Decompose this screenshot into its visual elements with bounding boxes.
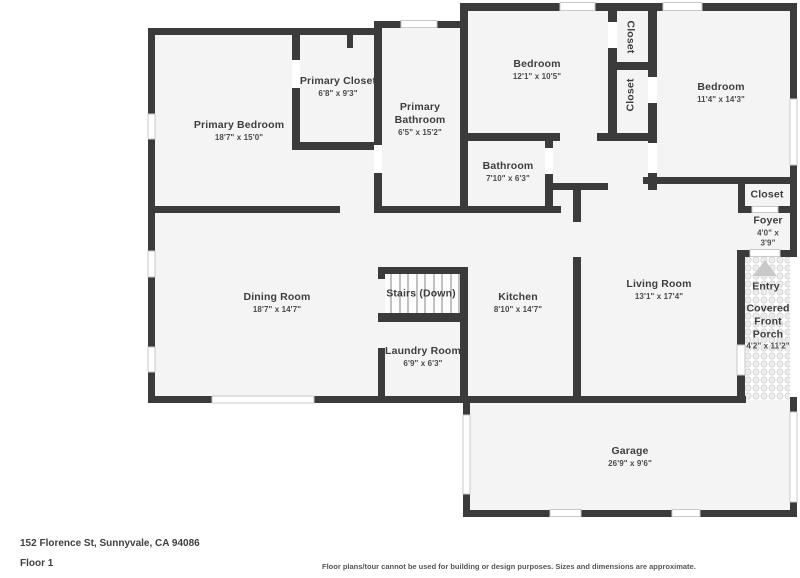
room-label-closet-top: Closet — [624, 21, 637, 54]
room-label-living: Living Room 13'1" x 17'4" — [626, 278, 691, 302]
floorplan-drawing — [0, 0, 800, 530]
room-label-garage: Garage 26'9" x 9'6" — [608, 445, 652, 469]
room-label-bedroom-left: Bedroom 12'1" x 10'5" — [513, 58, 561, 82]
room-label-kitchen: Kitchen 8'10" x 14'7" — [494, 291, 542, 315]
room-label-primary-bedroom: Primary Bedroom 18'7" x 15'0" — [194, 119, 284, 143]
room-label-laundry: Laundry Room 6'9" x 6'3" — [385, 345, 461, 369]
property-address: 152 Florence St, Sunnyvale, CA 94086 — [20, 538, 200, 549]
room-label-primary-bathroom: Primary Bathroom 6'5" x 15'2" — [388, 101, 452, 137]
floor-plan: Primary Bedroom 18'7" x 15'0" Primary Cl… — [0, 0, 800, 530]
room-label-dining: Dining Room 18'7" x 14'7" — [244, 291, 311, 315]
room-label-porch: Covered Front Porch 4'2" x 11'2" — [742, 302, 794, 351]
room-fills — [148, 3, 797, 517]
disclaimer-text: Floor plans/tour cannot be used for buil… — [322, 562, 696, 571]
room-label-entry: Entry — [752, 281, 780, 294]
room-label-bedroom-right: Bedroom 11'4" x 14'3" — [697, 81, 745, 105]
floor-plan-canvas: Primary Bedroom 18'7" x 15'0" Primary Cl… — [0, 0, 800, 578]
room-label-primary-closet: Primary Closet 6'8" x 9'3" — [300, 75, 376, 99]
room-label-closet-mid: Closet — [625, 79, 638, 112]
room-label-stairs: Stairs (Down) — [386, 288, 456, 301]
room-label-bathroom: Bathroom 7'10" x 6'3" — [483, 160, 534, 184]
floor-label: Floor 1 — [20, 558, 53, 569]
room-label-closet-foyer: Closet — [751, 189, 784, 202]
room-label-foyer: Foyer 4'0" x 3'9" — [752, 214, 784, 247]
